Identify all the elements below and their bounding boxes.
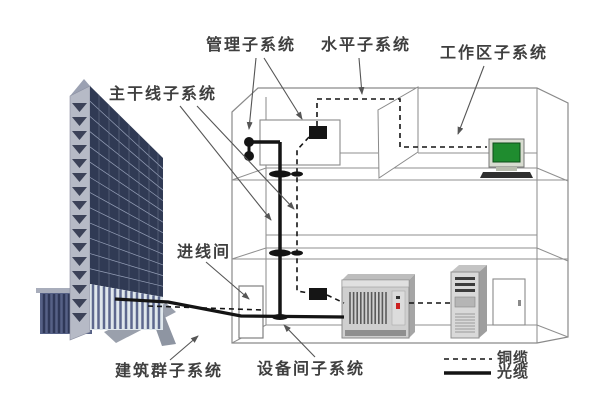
office-building-icon <box>36 79 176 346</box>
fiber-termination-dot <box>244 151 254 161</box>
structured-cabling-diagram: 管理子系统 水平子系统 工作区子系统 主干线子系统 进线间 建筑群子系统 设备间… <box>0 0 600 400</box>
patch-panel-box <box>309 288 327 300</box>
label-equipment-room-subsystem: 设备间子系统 <box>257 360 365 378</box>
rack-led <box>396 303 400 309</box>
label-entrance-room: 进线间 <box>177 243 231 261</box>
label-management-subsystem: 管理子系统 <box>206 36 296 54</box>
floor-cable-bushing <box>291 171 303 176</box>
floor-cable-bushing <box>291 250 303 255</box>
label-horizontal-subsystem: 水平子系统 <box>321 36 411 54</box>
label-campus-subsystem: 建筑群子系统 <box>115 362 223 380</box>
floor-cable-bushing <box>269 249 291 256</box>
door-icon <box>493 279 525 325</box>
legend-optical-label: 光缆 <box>497 364 529 381</box>
label-work-area-subsystem: 工作区子系统 <box>440 44 548 62</box>
fiber-termination-dot <box>244 137 254 147</box>
server-tower-icon <box>451 265 487 338</box>
label-backbone-subsystem: 主干线子系统 <box>109 85 217 103</box>
legend <box>444 359 492 373</box>
floor-cable-bushing <box>269 170 291 177</box>
computer-screen <box>493 143 520 162</box>
patch-panel-box <box>309 126 327 139</box>
floor-cable-bushing <box>272 314 288 320</box>
pbx-cabinet-icon <box>342 274 415 338</box>
